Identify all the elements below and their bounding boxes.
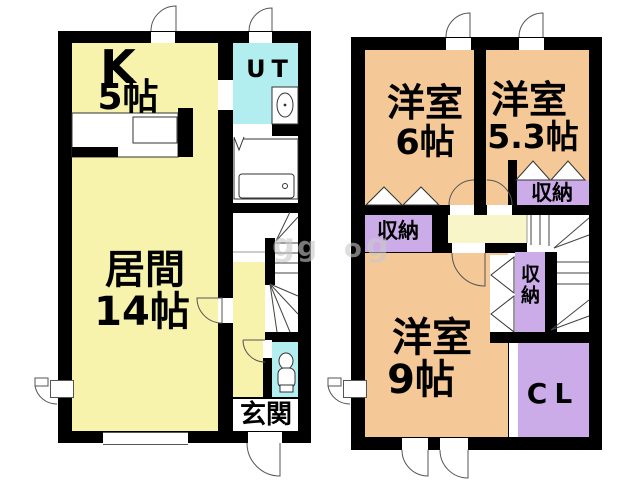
room-toilet [272,342,298,397]
window-opening [343,380,367,398]
watermark: g [272,226,295,264]
entrance-door-arc [247,443,280,476]
label-bedroom9-size: 9帖 [387,360,455,400]
door-opening [487,205,512,215]
door-opening [218,298,233,323]
wall [365,205,589,215]
wall [474,50,486,215]
door-opening [440,438,468,450]
wall [545,252,557,332]
floor-plan-image: K 5帖 居間 14帖 UT 玄関 洋室 6帖 洋室 5.3帖 収納 収納 収納… [0,0,640,480]
door-opening [249,32,272,43]
closet-c-doors-zone [490,255,515,332]
door-opening [218,80,233,110]
wall [490,332,589,343]
hallway-1f [233,262,265,398]
label-living-size: 14帖 [94,292,190,332]
door-opening [452,243,485,253]
watermark: g [366,226,389,264]
label-bedroom53: 洋室 [491,81,567,119]
window-opening [103,432,188,445]
door-opening [248,432,282,445]
wall [233,203,298,213]
label-living: 居間 [105,250,185,290]
label-closet-c: 収納 [519,264,538,332]
label-cl: CL [527,380,579,408]
watermark: g [297,230,317,263]
door-opening [151,32,175,43]
door-opening [402,438,428,450]
door-arc [151,6,176,31]
label-utility: UT [246,57,294,81]
door-arc [440,450,468,478]
label-bedroom6-size: 6帖 [395,126,454,161]
label-bedroom9: 洋室 [392,318,472,358]
label-kitchen-size: 5帖 [97,80,158,116]
watermark: o [344,234,362,264]
wall [508,160,517,205]
hallway-2f [448,215,527,243]
label-bedroom6: 洋室 [387,84,463,122]
door-opening [450,205,474,215]
label-entrance: 玄関 [240,402,292,428]
door-arc [519,13,543,37]
label-bedroom53-size: 5.3帖 [487,120,578,153]
door-opening [446,38,471,50]
window-opening [50,380,74,398]
wall [263,358,272,398]
door-arc [402,450,428,476]
door-opening [519,38,544,50]
wall [272,124,298,136]
door-arc [249,8,272,31]
label-closet-b: 収納 [531,183,573,204]
genkan-step-line [233,397,298,399]
door-opening [263,340,272,358]
door-arc [446,13,470,37]
